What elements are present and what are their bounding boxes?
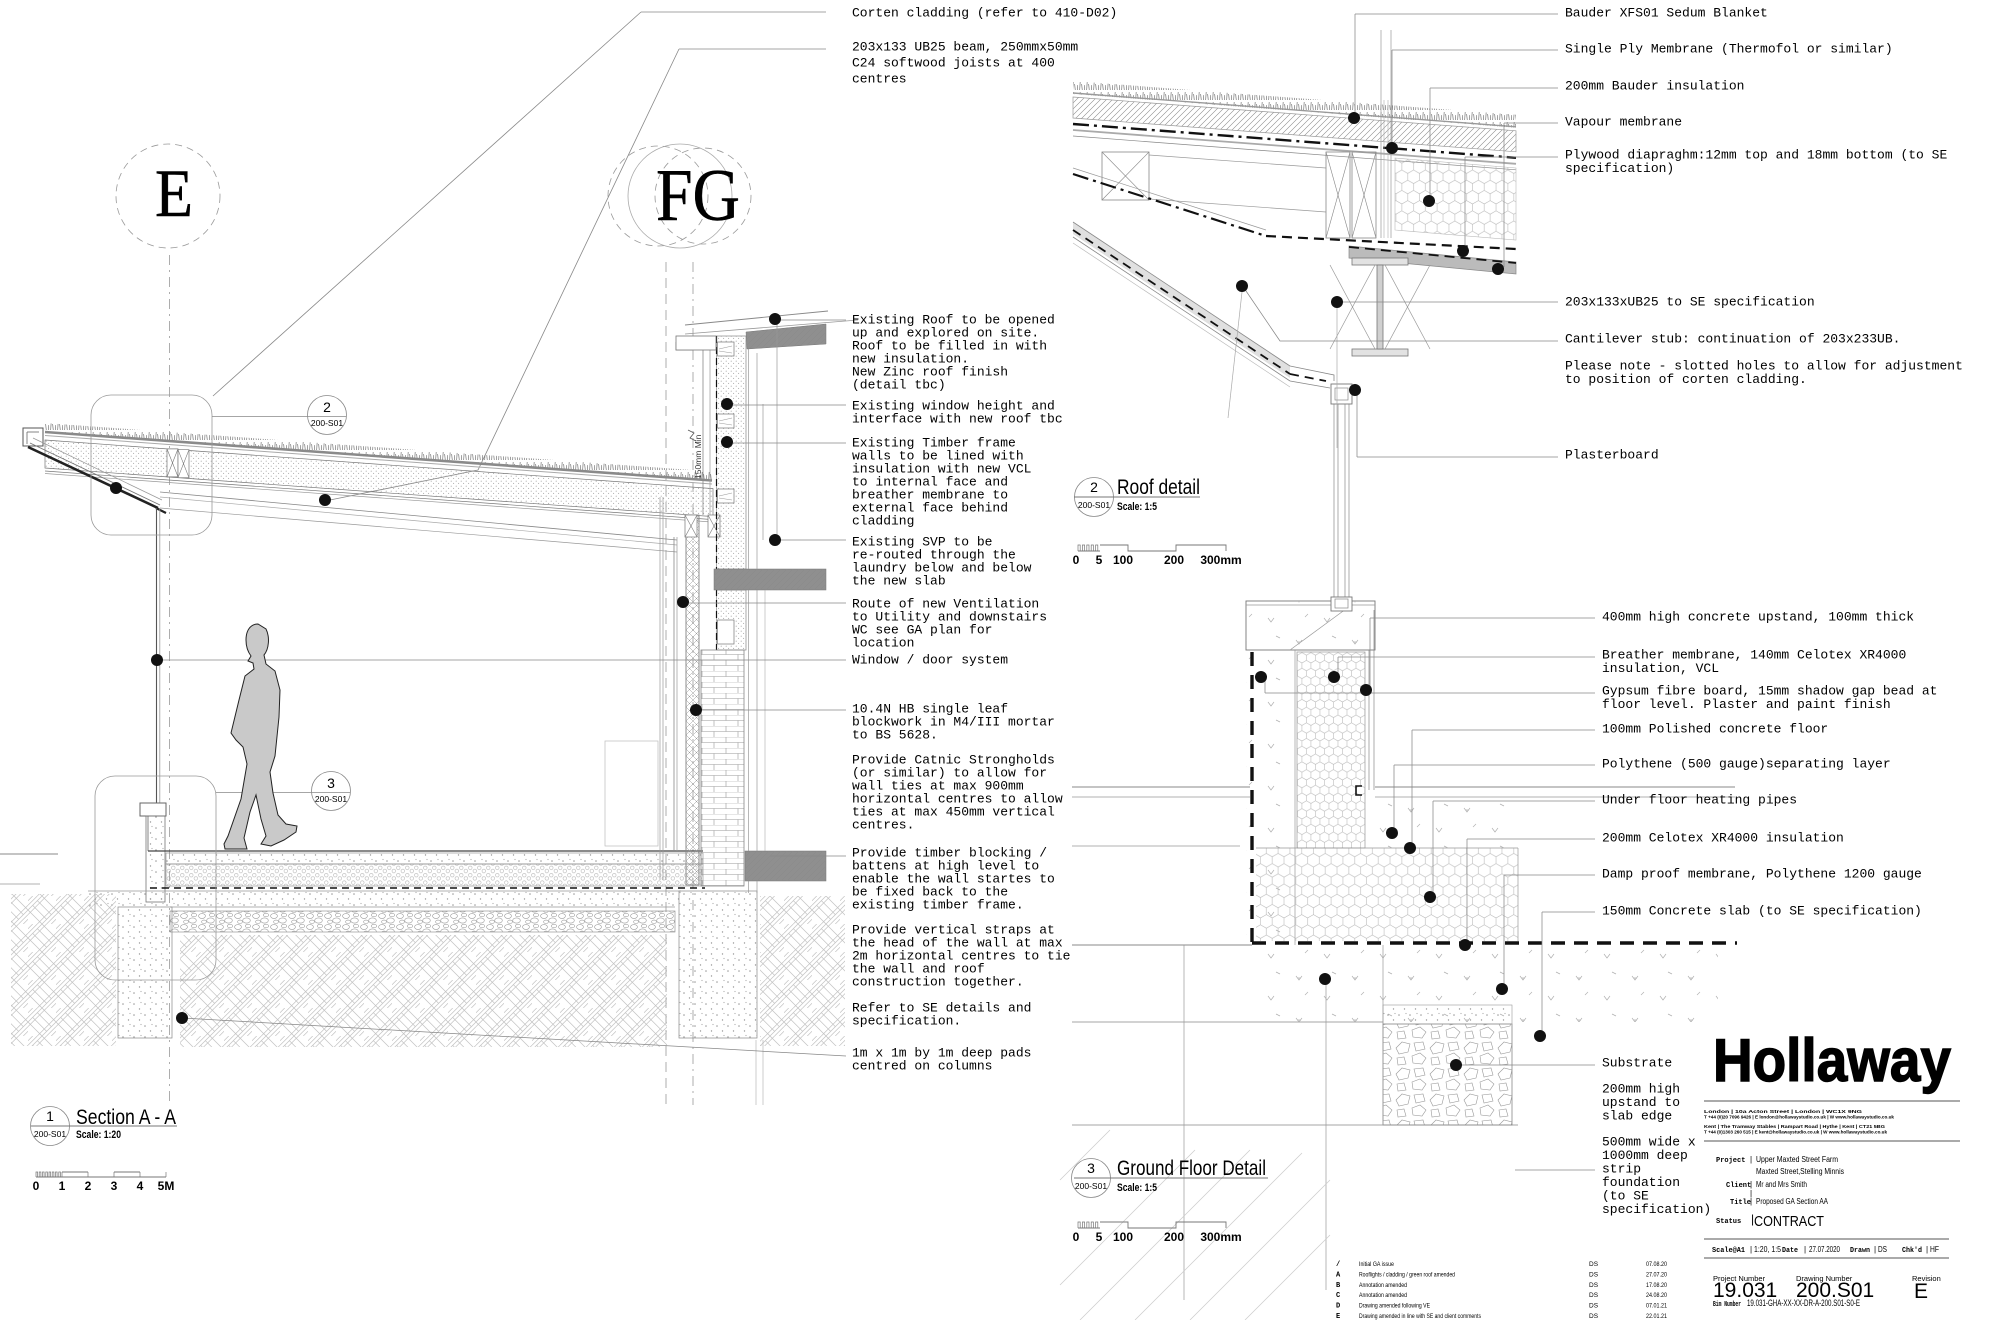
svg-text:|: | (1750, 1155, 1752, 1164)
svg-text:Scale: 1:5: Scale: 1:5 (1117, 1182, 1157, 1194)
svg-text:1:20, 1:5: 1:20, 1:5 (1754, 1245, 1781, 1254)
svg-text:Date: Date (1782, 1247, 1798, 1255)
svg-text:150mm Min: 150mm Min (693, 434, 703, 479)
svg-text:3: 3 (111, 1179, 118, 1193)
svg-text:27.07.20: 27.07.20 (1646, 1271, 1667, 1278)
svg-text:T +44 (0)1303 260 515 | E ke: T +44 (0)1303 260 515 | E kent@hollaways… (1704, 1130, 1887, 1135)
svg-text:200: 200 (1164, 553, 1184, 567)
svg-text:DS: DS (1878, 1245, 1887, 1254)
svg-text:Vapour membrane: Vapour membrane (1565, 115, 1682, 130)
svg-text:location: location (852, 636, 914, 651)
svg-text:0: 0 (33, 1179, 40, 1193)
svg-text:3: 3 (327, 775, 335, 791)
svg-text:300mm: 300mm (1200, 553, 1241, 567)
svg-text:24.08.20: 24.08.20 (1646, 1292, 1667, 1299)
svg-text:E: E (155, 155, 193, 231)
svg-text:07.01.21: 07.01.21 (1646, 1303, 1667, 1310)
svg-text:300mm: 300mm (1200, 1230, 1241, 1244)
svg-text:400mm high concrete upstand, 1: 400mm high concrete upstand, 100mm thick (1602, 610, 1914, 625)
svg-text:E: E (1914, 1280, 1928, 1303)
svg-text:Drawn: Drawn (1850, 1247, 1870, 1255)
svg-text:|: | (1750, 1180, 1752, 1189)
svg-text:D: D (1336, 1303, 1340, 1311)
svg-text:DS: DS (1589, 1303, 1599, 1310)
svg-text:insulation, VCL: insulation, VCL (1602, 661, 1719, 676)
svg-text:Client: Client (1726, 1182, 1751, 1190)
svg-text:200-S01: 200-S01 (315, 794, 347, 804)
svg-text:0: 0 (1073, 1230, 1080, 1244)
svg-text:Under floor heating pipes: Under floor heating pipes (1602, 793, 1797, 808)
svg-text:|: | (1804, 1245, 1806, 1254)
svg-text:200mm Bauder insulation: 200mm Bauder insulation (1565, 79, 1744, 94)
svg-text:Scale: 1:5: Scale: 1:5 (1117, 501, 1157, 513)
svg-text:Damp proof membrane, Polythene: Damp proof membrane, Polythene 1200 gaug… (1602, 867, 1922, 882)
svg-text:Kent | The Tramway Stabl: Kent | The Tramway Stables | Rampart Roa… (1704, 1124, 1885, 1129)
svg-text:1: 1 (59, 1179, 66, 1193)
svg-text:Scale: 1:20: Scale: 1:20 (76, 1129, 121, 1141)
svg-text:Proposed GA Section AA: Proposed GA Section AA (1756, 1197, 1829, 1206)
svg-text:to BS 5628.: to BS 5628. (852, 728, 938, 743)
svg-text:203x133 UB25 beam, 250mmx50mm: 203x133 UB25 beam, 250mmx50mm (852, 40, 1078, 55)
svg-text:centred on columns: centred on columns (852, 1059, 992, 1074)
svg-text:Single Ply Membrane (Thermofol: Single Ply Membrane (Thermofol or simila… (1565, 42, 1893, 57)
svg-text:Roof detail: Roof detail (1117, 476, 1200, 499)
svg-text:Polythene (500 gauge)separatin: Polythene (500 gauge)separating layer (1602, 757, 1891, 772)
svg-text:DS: DS (1589, 1292, 1599, 1299)
svg-text:Corten cladding (refer to 410-: Corten cladding (refer to 410-D02) (852, 6, 1117, 21)
svg-text:DS: DS (1589, 1271, 1599, 1278)
svg-text:interface with new roof tbc: interface with new roof tbc (852, 412, 1063, 427)
svg-text:22.01.21: 22.01.21 (1646, 1313, 1667, 1320)
svg-text:specification): specification) (1602, 1202, 1711, 1217)
svg-text:100: 100 (1113, 553, 1133, 567)
svg-text:|: | (1874, 1245, 1876, 1254)
svg-text:DS: DS (1589, 1261, 1599, 1268)
svg-text:17.08.20: 17.08.20 (1646, 1282, 1667, 1289)
svg-text:27.07.2020: 27.07.2020 (1809, 1245, 1840, 1254)
svg-text:200-S01: 200-S01 (1078, 500, 1110, 510)
svg-text:2: 2 (1090, 479, 1098, 495)
svg-text:Annotation amended: Annotation amended (1359, 1292, 1407, 1299)
svg-text:existing timber frame.: existing timber frame. (852, 898, 1024, 913)
svg-text:T +44 (0)20 7096 9426 | E lo: T +44 (0)20 7096 9426 | E london@hollawa… (1704, 1115, 1894, 1120)
svg-text:Maxted Street,Stelling Minnis: Maxted Street,Stelling Minnis (1756, 1167, 1844, 1176)
svg-text:FG: FG (656, 155, 740, 237)
svg-text:200-S01: 200-S01 (311, 418, 343, 428)
svg-text:Status: Status (1716, 1218, 1741, 1226)
svg-text:Upper Maxted Street Farm: Upper Maxted Street Farm (1756, 1155, 1838, 1164)
svg-text:19.031-GHA-XX-XX-DR-A-200.S01-: 19.031-GHA-XX-XX-DR-A-200.S01-S0-E (1747, 1298, 1860, 1309)
svg-text:centres.: centres. (852, 818, 914, 833)
svg-text:Mr and Mrs Smith: Mr and Mrs Smith (1756, 1180, 1807, 1189)
svg-text:Chk'd: Chk'd (1902, 1247, 1922, 1255)
svg-text:Hollaway: Hollaway (1713, 1027, 1952, 1094)
svg-text:Substrate: Substrate (1602, 1056, 1672, 1071)
svg-text:200mm Celotex XR4000 insulatio: 200mm Celotex XR4000 insulation (1602, 831, 1844, 846)
svg-text:Ground Floor Detail: Ground Floor Detail (1117, 1157, 1266, 1180)
svg-text:HF: HF (1930, 1245, 1939, 1254)
svg-text:4: 4 (137, 1179, 144, 1193)
svg-text:Section A - A: Section A - A (76, 1106, 176, 1129)
svg-text:cladding: cladding (852, 514, 914, 529)
svg-text:centres: centres (852, 72, 907, 87)
svg-text:Window / door system: Window / door system (852, 653, 1008, 668)
svg-text:Plasterboard: Plasterboard (1565, 448, 1659, 463)
svg-text:to position of corten cladding: to position of corten cladding. (1565, 372, 1807, 387)
svg-text:07.08.20: 07.08.20 (1646, 1261, 1667, 1268)
svg-text:1: 1 (46, 1108, 54, 1124)
svg-text:the new slab: the new slab (852, 574, 946, 589)
svg-text:Rooflights / cladding / green: Rooflights / cladding / green roof amend… (1359, 1271, 1455, 1278)
svg-text:/: / (1336, 1261, 1340, 1269)
svg-text:0: 0 (1073, 553, 1080, 567)
svg-text:DS: DS (1589, 1282, 1599, 1289)
svg-text:Cantilever stub: continuation: Cantilever stub: continuation of 203x233… (1565, 332, 1900, 347)
svg-text:specification.: specification. (852, 1014, 961, 1029)
svg-text:Drawing amended in line with S: Drawing amended in line with SE and clie… (1359, 1313, 1482, 1320)
svg-text:specification): specification) (1565, 161, 1674, 176)
svg-text:Scale@A1: Scale@A1 (1712, 1247, 1745, 1255)
svg-text:|: | (1750, 1197, 1752, 1206)
svg-text:Project: Project (1716, 1157, 1745, 1165)
svg-text:200-S01: 200-S01 (1075, 1181, 1107, 1191)
svg-text:200-S01: 200-S01 (34, 1129, 66, 1139)
svg-text:Title: Title (1730, 1199, 1751, 1207)
svg-text:100: 100 (1113, 1230, 1133, 1244)
svg-text:Initial GA issue: Initial GA issue (1359, 1261, 1394, 1268)
svg-text:150mm Concrete slab (to SE spe: 150mm Concrete slab (to SE specification… (1602, 904, 1922, 919)
svg-text:|: | (1750, 1245, 1752, 1254)
svg-text:|: | (1926, 1245, 1928, 1254)
svg-text:CONTRACT: CONTRACT (1754, 1214, 1824, 1230)
svg-text:200: 200 (1164, 1230, 1184, 1244)
svg-text:203x133xUB25 to SE specificati: 203x133xUB25 to SE specification (1565, 295, 1815, 310)
svg-text:slab edge: slab edge (1602, 1109, 1672, 1124)
svg-text:Bauder XFS01 Sedum Blanket: Bauder XFS01 Sedum Blanket (1565, 6, 1768, 21)
svg-text:construction together.: construction together. (852, 975, 1024, 990)
svg-text:2: 2 (323, 399, 331, 415)
svg-text:E: E (1336, 1313, 1340, 1320)
svg-text:Bim Number: Bim Number (1713, 1301, 1741, 1309)
svg-text:(detail tbc): (detail tbc) (852, 378, 946, 393)
svg-text:Annotation amended: Annotation amended (1359, 1282, 1407, 1289)
svg-text:5M: 5M (158, 1179, 175, 1193)
svg-text:100mm Polished concrete floor: 100mm Polished concrete floor (1602, 722, 1828, 737)
svg-text:5: 5 (1096, 1230, 1103, 1244)
svg-text:DS: DS (1589, 1313, 1599, 1320)
svg-text:2: 2 (85, 1179, 92, 1193)
svg-text:Drawing amended following VE: Drawing amended following VE (1359, 1303, 1431, 1310)
svg-text:3: 3 (1087, 1160, 1095, 1176)
svg-text:C: C (1336, 1292, 1340, 1300)
svg-text:5: 5 (1096, 553, 1103, 567)
svg-text:London | 10a Acton S: London | 10a Acton Street | London | WC1… (1704, 1109, 1863, 1114)
svg-text:C24 softwood joists at 400: C24 softwood joists at 400 (852, 56, 1055, 71)
svg-text:floor level. Plaster and paint: floor level. Plaster and paint finish (1602, 697, 1891, 712)
